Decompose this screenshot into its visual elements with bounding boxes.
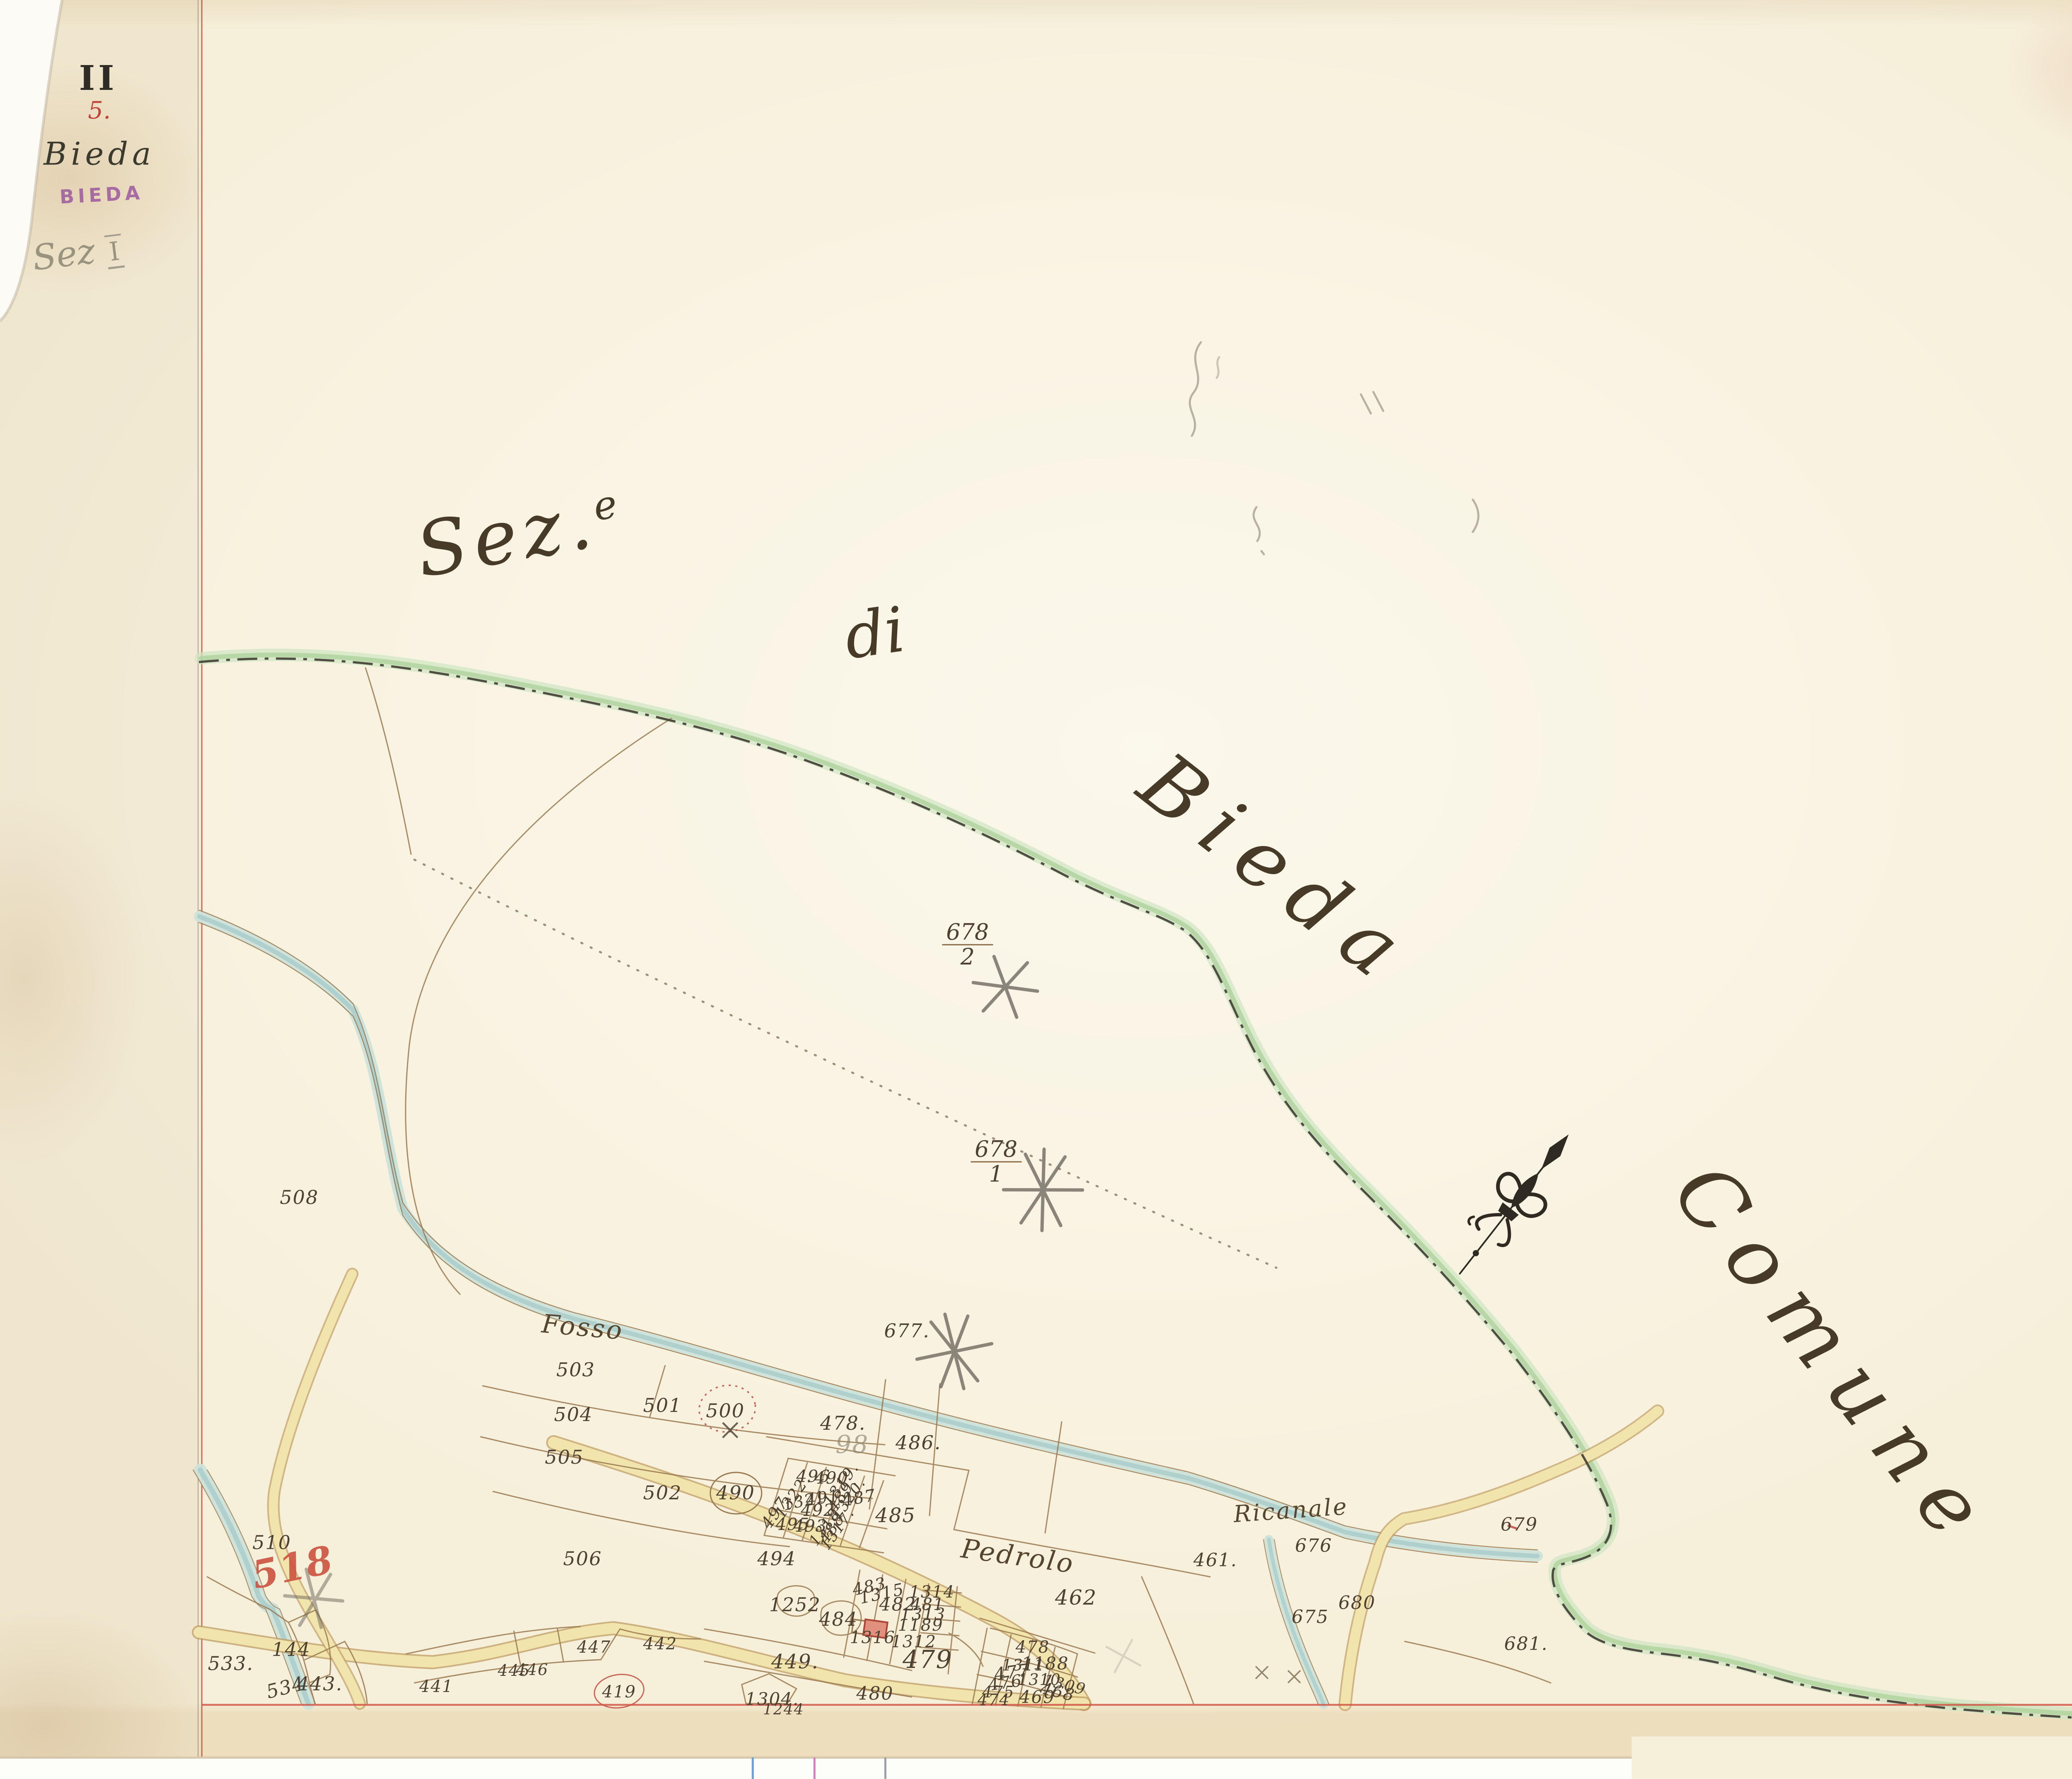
registration-tick (752, 1757, 754, 1779)
registration-tick (884, 1757, 886, 1779)
bottom-edge-ticks (0, 0, 2072, 1779)
registration-tick (813, 1757, 816, 1779)
cadastral-map-sheet: II 5. Bieda BIEDA SezI Sez.e di Bieda Co… (0, 0, 2072, 1779)
